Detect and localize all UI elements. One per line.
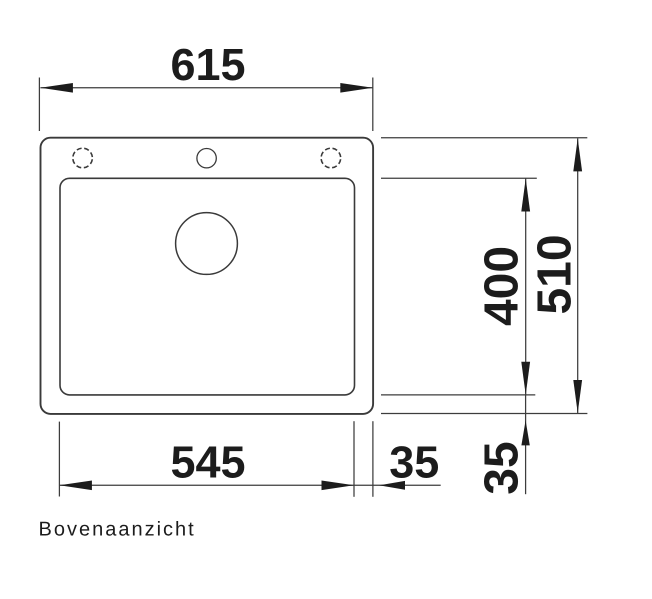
svg-text:545: 545 [170, 437, 245, 488]
svg-text:35: 35 [476, 441, 529, 494]
svg-text:510: 510 [528, 234, 581, 314]
svg-text:400: 400 [476, 246, 529, 326]
svg-text:35: 35 [389, 437, 439, 488]
svg-text:615: 615 [170, 39, 245, 90]
svg-text:Bovenaanzicht: Bovenaanzicht [39, 518, 196, 540]
